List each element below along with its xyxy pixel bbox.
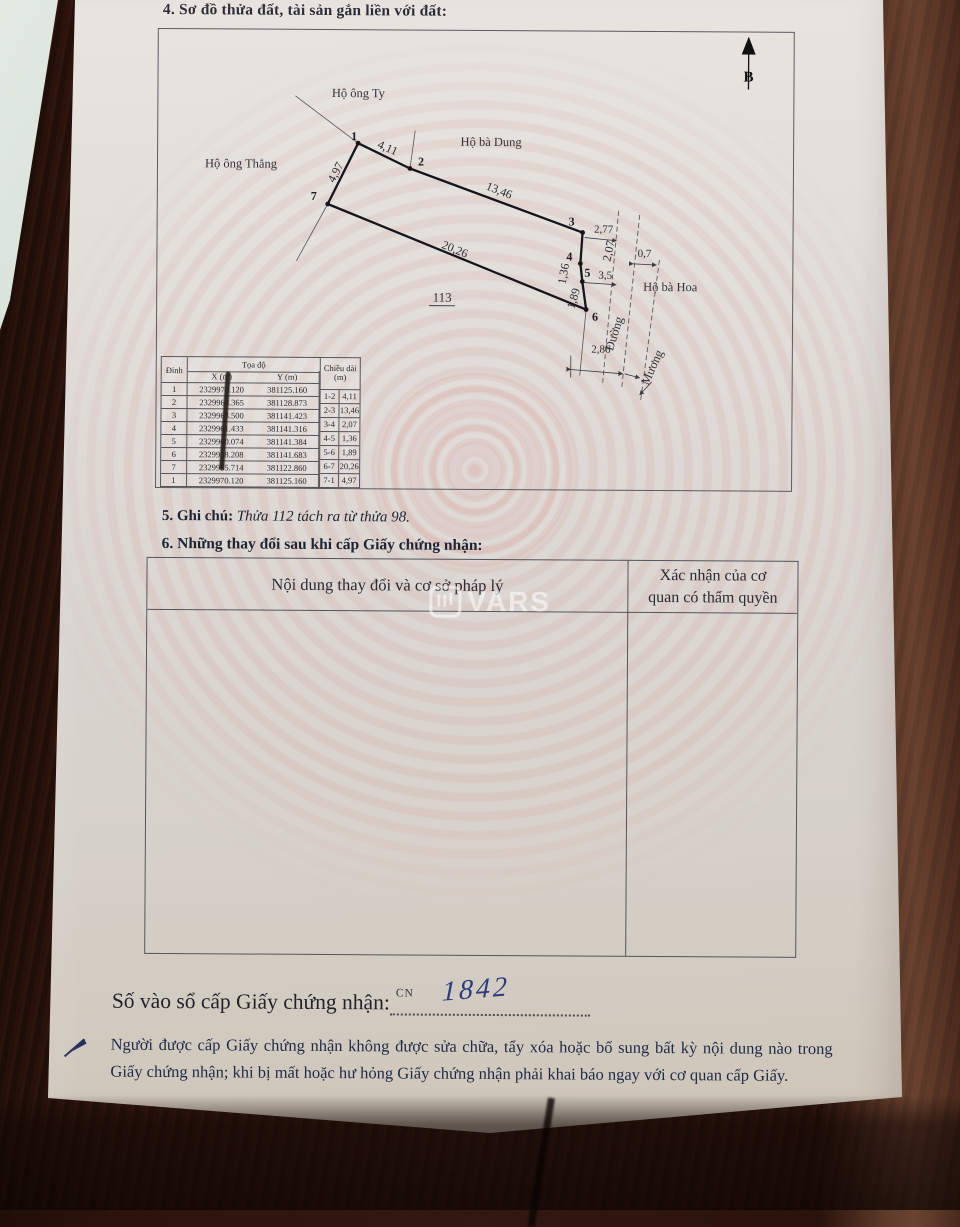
- cell-dinh: 1: [162, 383, 188, 396]
- vars-logo-icon: [429, 586, 461, 618]
- neighbor-right: Hộ bà Hoa: [643, 280, 698, 294]
- measure-to-road-top: 2,77: [594, 224, 614, 236]
- edge-label-7-1: 4,97: [324, 160, 346, 185]
- edge-label-1-2: 4,11: [375, 137, 400, 158]
- cell-y: 381141.384: [255, 436, 319, 449]
- wood-table-bottom: [0, 1095, 960, 1210]
- coordinate-table: Đỉnh Tọa độ X (m) Y (m) 1 2329970.120 38…: [160, 356, 361, 488]
- pen-flag-icon: [64, 1035, 90, 1057]
- registry-number-line: Số vào sổ cấp Giấy chứng nhận:CN1842: [112, 984, 590, 1023]
- measure-canal-width: 0,7: [638, 248, 652, 260]
- vertex-dots: [325, 141, 590, 312]
- registry-number-handwritten: 1842: [442, 971, 511, 1009]
- section5-label: 5. Ghi chú:: [162, 508, 233, 524]
- vars-watermark-text: VARS: [467, 586, 551, 619]
- vertex-label-6: 6: [592, 310, 598, 324]
- plot-boundary-polygon: [327, 143, 587, 310]
- certificate-page: 4. Sơ đồ thửa đất, tài sản gắn liền với …: [45, 0, 905, 1142]
- col-header-y: Y (m): [256, 371, 320, 384]
- length-row: 2-313,46: [320, 404, 359, 418]
- north-arrow-icon: B: [741, 37, 755, 90]
- cell-y: 381141.316: [255, 423, 319, 436]
- cell-dinh: 1: [161, 474, 187, 487]
- neighbor-top: Hộ ông Ty: [332, 86, 386, 100]
- cell-y: 381122.860: [255, 462, 319, 475]
- cell-dinh: 5: [161, 435, 187, 448]
- section4-title: 4. Sơ đồ thửa đất, tài sản gắn liền với …: [163, 1, 447, 21]
- cell-x: 2329968.365: [188, 396, 256, 409]
- vertex-label-7: 7: [311, 189, 317, 203]
- north-letter: B: [743, 70, 753, 86]
- cell-dinh: 4: [161, 422, 187, 435]
- boundary-extension-lines: [294, 96, 588, 376]
- cell-dinh: 3: [161, 409, 187, 422]
- cell-y: 381125.160: [255, 475, 319, 488]
- changes-column-divider: [625, 612, 628, 956]
- neighbor-right-top: Hộ bà Dung: [461, 135, 523, 149]
- cell-y: 381128.873: [255, 397, 319, 410]
- registry-prefix: CN: [396, 987, 414, 999]
- length-row: 5-61,89: [320, 446, 359, 460]
- plot-number: 113: [433, 290, 452, 305]
- length-row: 7-14,97: [320, 474, 359, 487]
- edge-label-4-5: 1,36: [555, 262, 573, 285]
- vertex-label-2: 2: [418, 155, 424, 169]
- col-header-x: X (m): [188, 370, 256, 383]
- cell-x: 2329970.120: [187, 474, 255, 487]
- measure-to-road-mid: 3,5: [598, 270, 612, 282]
- cell-dinh: 7: [161, 461, 187, 474]
- cell-y: 381141.423: [255, 410, 319, 423]
- footer-warning-text: Người được cấp Giấy chứng nhận không đượ…: [110, 1031, 832, 1090]
- cell-dinh: 6: [161, 448, 187, 461]
- cell-dinh: 2: [162, 396, 188, 409]
- changes-col1-header: Nội dung thay đổi và cơ sở pháp lý: [147, 558, 628, 613]
- registry-dotted-line: CN1842: [390, 985, 590, 1016]
- length-row: 6-720,26: [320, 460, 359, 474]
- vertex-label-1: 1: [351, 129, 357, 143]
- length-row: 1-24,11: [321, 390, 360, 404]
- cell-x: 2329970.120: [188, 383, 256, 396]
- registry-label: Số vào sổ cấp Giấy chứng nhận:: [112, 989, 390, 1015]
- vertex-label-5: 5: [584, 266, 590, 280]
- length-row: 3-42,07: [320, 418, 359, 432]
- cell-y: 381141.683: [255, 449, 319, 462]
- edge-label-3-4: 2,07: [599, 239, 617, 263]
- section5-note-line: 5. Ghi chú: Thửa 112 tách ra từ thửa 98.: [162, 508, 410, 527]
- col-header-dinh: Đỉnh: [162, 357, 188, 383]
- canal-label: Mương: [638, 347, 666, 387]
- vertex-label-3: 3: [569, 214, 575, 228]
- section5-note: Thửa 112 tách ra từ thửa 98.: [237, 508, 410, 525]
- col-header-chieudai: Chiều dài (m): [321, 358, 360, 390]
- vertex-label-4: 4: [566, 249, 572, 263]
- length-row: 4-51,36: [320, 432, 359, 446]
- vars-watermark: VARS: [429, 586, 551, 619]
- changes-col2-header: Xác nhận của cơ quan có thẩm quyền: [628, 561, 797, 614]
- section6-title: 6. Những thay đổi sau khi cấp Giấy chứng…: [162, 535, 483, 555]
- road-label: Đường: [602, 314, 626, 352]
- cell-y: 381125.160: [256, 384, 320, 397]
- neighbor-left: Hộ ông Thẳng: [205, 156, 278, 170]
